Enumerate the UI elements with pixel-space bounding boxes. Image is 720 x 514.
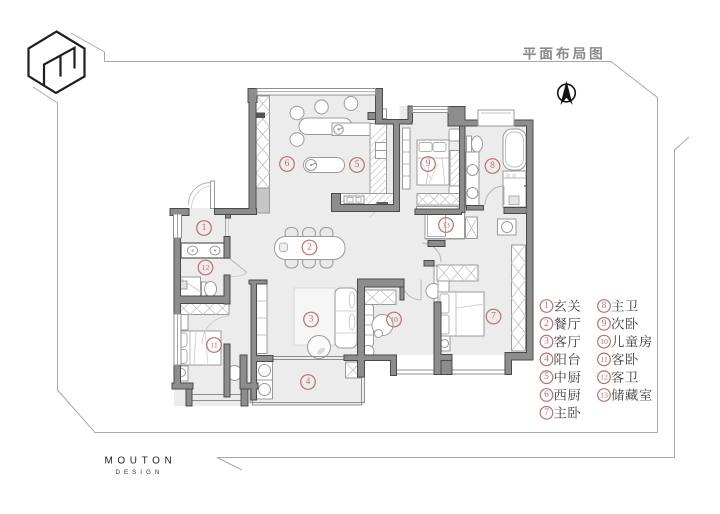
svg-text:3: 3	[309, 315, 314, 325]
svg-text:5: 5	[355, 160, 360, 170]
svg-text:11: 11	[600, 355, 608, 364]
svg-text:12: 12	[600, 373, 608, 382]
svg-text:5: 5	[544, 372, 549, 382]
svg-text:12: 12	[202, 263, 210, 272]
svg-text:13: 13	[442, 221, 450, 230]
svg-text:1: 1	[544, 301, 549, 311]
svg-text:3: 3	[544, 337, 549, 347]
svg-text:9: 9	[602, 319, 607, 329]
svg-text:2: 2	[544, 319, 549, 329]
svg-text:10: 10	[600, 337, 608, 346]
svg-text:8: 8	[490, 161, 495, 171]
svg-text:1: 1	[202, 223, 207, 233]
svg-text:9: 9	[426, 159, 431, 169]
svg-text:7: 7	[544, 408, 549, 418]
svg-text:4: 4	[544, 354, 549, 364]
svg-text:6: 6	[544, 390, 549, 400]
svg-text:2: 2	[307, 243, 312, 253]
svg-text:4: 4	[306, 377, 311, 387]
svg-text:10: 10	[390, 315, 398, 324]
svg-text:13: 13	[600, 391, 608, 400]
svg-text:7: 7	[491, 312, 496, 322]
svg-text:11: 11	[210, 341, 218, 350]
svg-text:8: 8	[602, 301, 607, 311]
svg-text:6: 6	[285, 159, 290, 169]
svg-text:MOUTON: MOUTON	[105, 456, 177, 467]
svg-text:DESIGN: DESIGN	[116, 469, 164, 476]
